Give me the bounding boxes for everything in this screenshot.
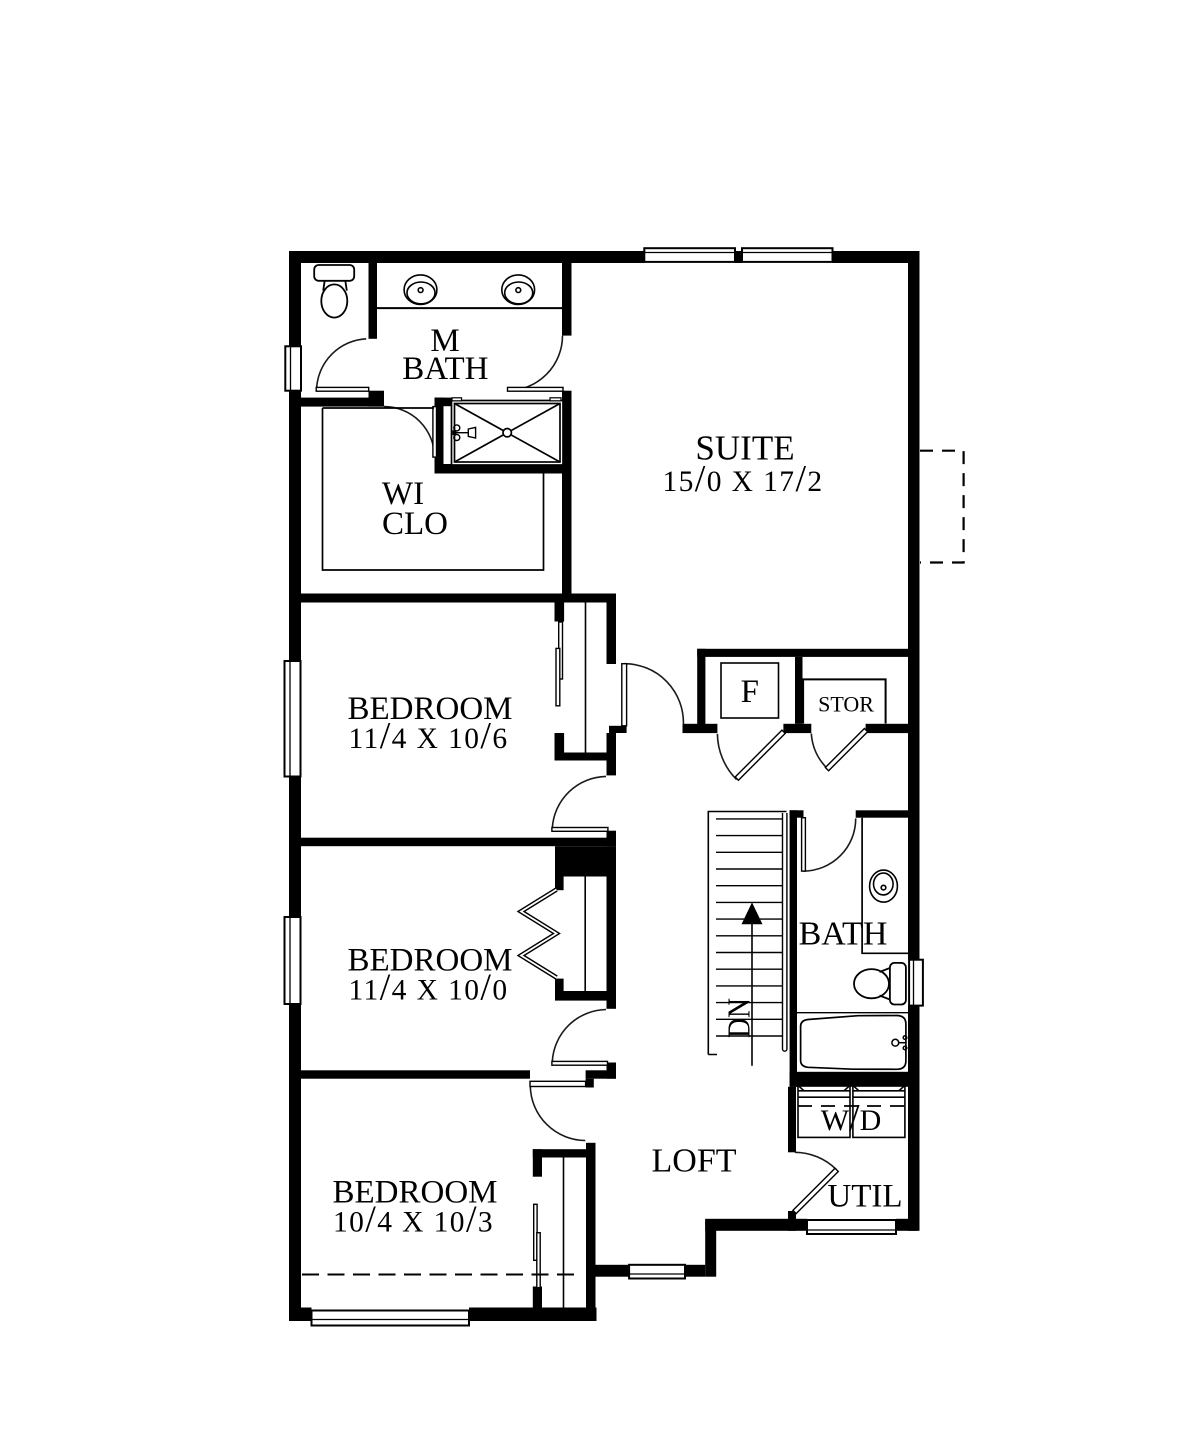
svg-text:STOR: STOR: [818, 692, 874, 717]
svg-text:BATH: BATH: [402, 351, 488, 387]
svg-text:DN: DN: [721, 998, 757, 1038]
svg-text:SUITE: SUITE: [695, 429, 794, 468]
svg-text:UTIL: UTIL: [827, 1178, 902, 1214]
svg-text:CLO: CLO: [382, 506, 448, 542]
svg-text:W/D: W/D: [821, 1097, 882, 1139]
svg-text:BATH: BATH: [799, 916, 888, 953]
svg-text:F: F: [741, 674, 759, 710]
svg-text:LOFT: LOFT: [652, 1143, 737, 1180]
